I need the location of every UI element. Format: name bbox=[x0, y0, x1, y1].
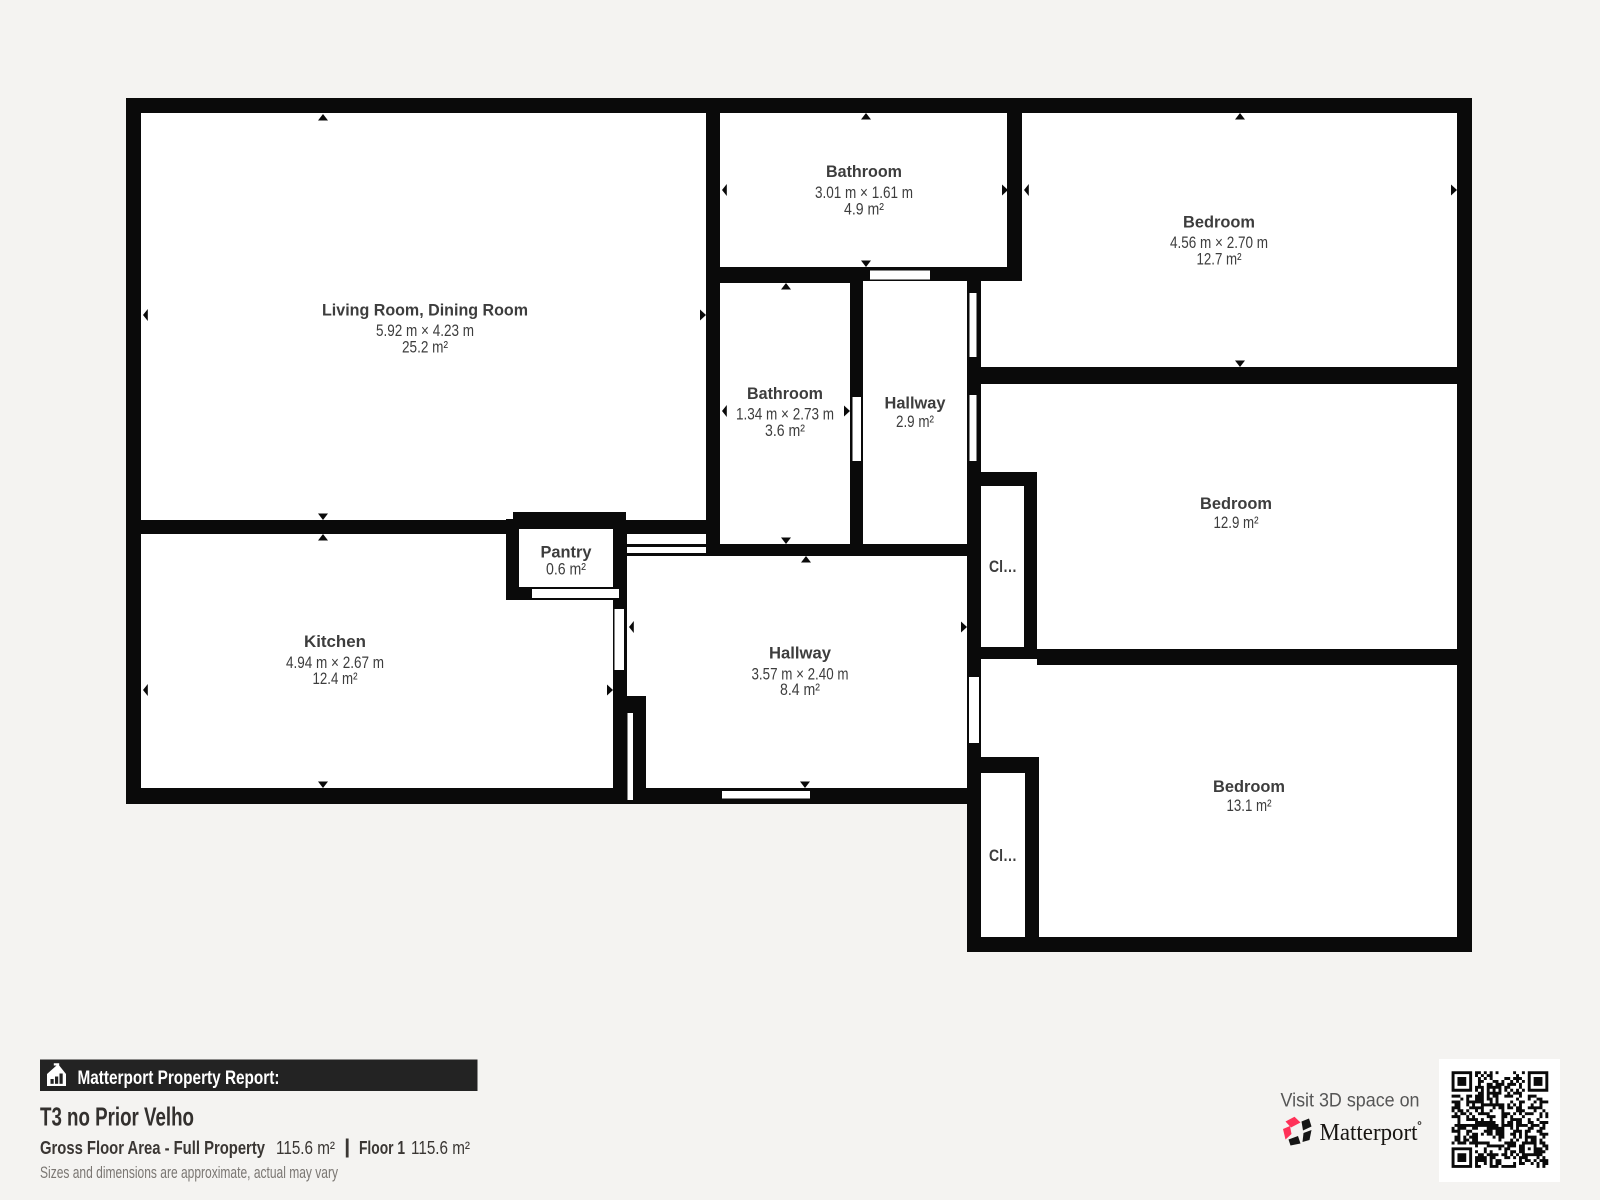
svg-text:Gross Floor Area - Full Proper: Gross Floor Area - Full Property bbox=[40, 1138, 265, 1158]
svg-text:Pantry: Pantry bbox=[541, 544, 593, 562]
svg-text:Hallway: Hallway bbox=[885, 395, 947, 413]
svg-text:Bedroom: Bedroom bbox=[1200, 495, 1272, 513]
svg-text:115.6 m²: 115.6 m² bbox=[411, 1138, 470, 1158]
svg-text:Living Room, Dining Room: Living Room, Dining Room bbox=[322, 301, 528, 319]
svg-text:4.56 m × 2.70 m: 4.56 m × 2.70 m bbox=[1170, 234, 1268, 252]
svg-text:12.4 m²: 12.4 m² bbox=[313, 670, 358, 688]
svg-text:Cl…: Cl… bbox=[989, 558, 1017, 576]
svg-text:115.6 m²: 115.6 m² bbox=[276, 1138, 335, 1158]
svg-text:5.92 m × 4.23 m: 5.92 m × 4.23 m bbox=[376, 322, 474, 340]
svg-text:1.34 m × 2.73 m: 1.34 m × 2.73 m bbox=[736, 406, 834, 424]
svg-text:Kitchen: Kitchen bbox=[304, 633, 366, 651]
svg-text:Matterport Property Report:: Matterport Property Report: bbox=[78, 1067, 280, 1089]
svg-text:Bathroom: Bathroom bbox=[747, 385, 823, 403]
svg-text:T3 no Prior Velho: T3 no Prior Velho bbox=[40, 1102, 194, 1132]
svg-text:2.9 m²: 2.9 m² bbox=[896, 413, 934, 431]
svg-text:25.2 m²: 25.2 m² bbox=[402, 339, 448, 357]
svg-text:Hallway: Hallway bbox=[769, 645, 832, 663]
svg-text:13.1 m²: 13.1 m² bbox=[1227, 797, 1272, 815]
svg-text:12.7 m²: 12.7 m² bbox=[1197, 251, 1242, 269]
svg-text:Floor 1: Floor 1 bbox=[359, 1138, 405, 1158]
svg-text:Cl…: Cl… bbox=[989, 847, 1017, 865]
svg-text:4.94 m × 2.67 m: 4.94 m × 2.67 m bbox=[286, 654, 384, 672]
svg-text:Matterport: Matterport bbox=[1320, 1120, 1418, 1146]
svg-text:8.4 m²: 8.4 m² bbox=[780, 681, 820, 699]
svg-text:3.6 m²: 3.6 m² bbox=[765, 422, 805, 440]
svg-text:Visit 3D space on: Visit 3D space on bbox=[1281, 1090, 1420, 1112]
svg-text:Sizes and dimensions are appro: Sizes and dimensions are approximate, ac… bbox=[40, 1163, 338, 1182]
svg-text:3.01 m × 1.61 m: 3.01 m × 1.61 m bbox=[815, 184, 913, 202]
svg-text:Bedroom: Bedroom bbox=[1213, 778, 1285, 796]
svg-text:12.9 m²: 12.9 m² bbox=[1214, 514, 1259, 532]
svg-text:Bedroom: Bedroom bbox=[1183, 214, 1255, 232]
svg-text:4.9 m²: 4.9 m² bbox=[844, 200, 884, 218]
svg-text:Bathroom: Bathroom bbox=[826, 163, 902, 181]
svg-text:0.6 m²: 0.6 m² bbox=[546, 561, 586, 579]
